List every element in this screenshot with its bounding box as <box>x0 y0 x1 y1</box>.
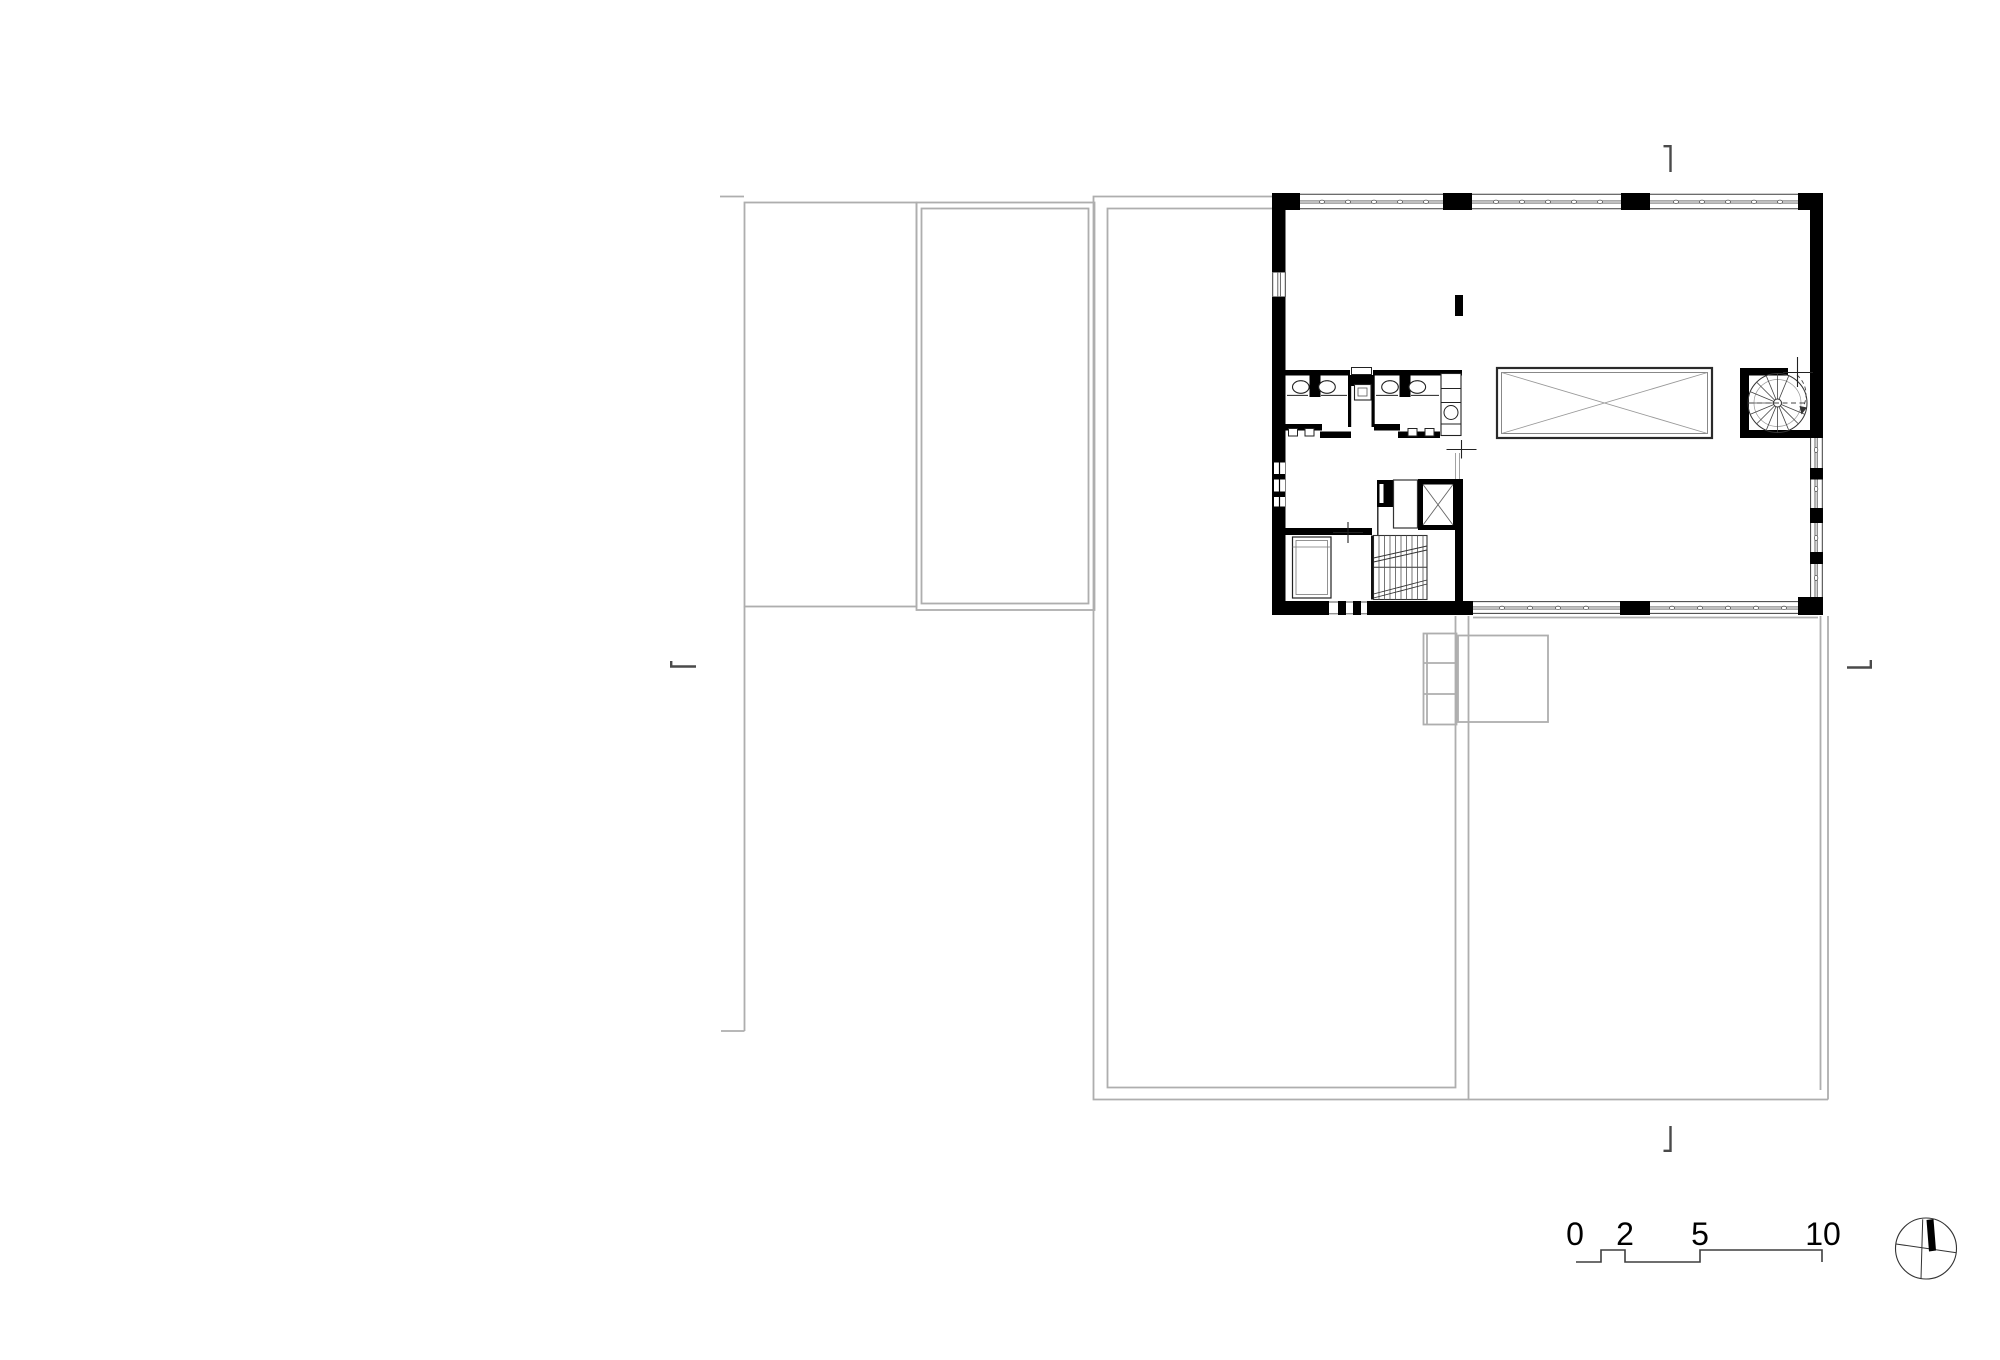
survey-cross-2 <box>1447 440 1477 459</box>
shaft <box>1394 480 1418 528</box>
floor-plan-canvas: 0 2 5 10 <box>0 0 2000 1360</box>
underlay-lower-landing <box>1458 636 1548 723</box>
shaft-block-slot <box>1380 484 1384 503</box>
scale-label-0: 0 <box>1566 1216 1584 1252</box>
section-marker-left <box>670 661 696 667</box>
drawing-sheet: 0 2 5 10 <box>0 0 2000 1360</box>
wall-left-middle <box>1272 297 1286 461</box>
core-thin-lines <box>1456 453 1460 479</box>
washbasin-3 <box>1382 381 1399 394</box>
wall-shaft-block <box>1377 480 1393 507</box>
underlay-block-b-outer <box>917 203 1095 611</box>
section-marker-top <box>1664 145 1671 172</box>
scale-label-5: 5 <box>1691 1216 1709 1252</box>
wall-top-pier-2 <box>1621 193 1650 210</box>
entry-door-post-2 <box>1353 601 1361 615</box>
scale-label-2: 2 <box>1616 1216 1634 1252</box>
spiral-stair <box>1740 368 1813 438</box>
survey-cross-1 <box>1783 357 1813 387</box>
lower-rooms <box>1293 453 1460 600</box>
section-marker-right <box>1847 660 1872 668</box>
left-wall-glass-blocks <box>1274 463 1285 507</box>
wall-right-pier-1 <box>1810 468 1823 480</box>
underlay-right-terrace <box>1469 616 1829 1100</box>
wall-top-corner-left <box>1272 193 1300 210</box>
underlay-left-edge <box>721 607 745 1032</box>
spiral-wall-bottom <box>1740 430 1813 438</box>
wall-right-pier-2 <box>1810 508 1823 523</box>
wall-bedroom <box>1284 528 1372 535</box>
entry-door-post-1 <box>1338 601 1346 615</box>
elevator <box>1418 479 1458 530</box>
wc-wall-left <box>1348 375 1351 427</box>
spiral-treads <box>1748 374 1807 433</box>
underlay-block-b-inner <box>922 209 1089 604</box>
bathroom-pier-left <box>1310 370 1321 397</box>
hall-column <box>1455 295 1463 316</box>
wall-right-pier-3 <box>1810 552 1823 564</box>
spiral-wall-top <box>1740 368 1788 376</box>
scale-bar: 0 2 5 10 <box>1566 1216 1841 1262</box>
wall-left-lower <box>1272 508 1286 615</box>
kitchenette-counter <box>1441 374 1461 436</box>
wall-top-pier-1 <box>1443 193 1472 210</box>
floor-registers <box>1289 429 1435 437</box>
wall-right-solid <box>1810 193 1823 438</box>
north-needle <box>1927 1219 1937 1252</box>
bathroom-cabinet-over-wc <box>1352 368 1372 375</box>
scale-label-10: 10 <box>1805 1216 1841 1252</box>
wc-cistern <box>1355 385 1372 401</box>
underlay-block-a <box>745 203 917 607</box>
bed <box>1293 537 1332 598</box>
section-marker-bottom <box>1664 1126 1671 1152</box>
bathroom-pier-right <box>1400 370 1411 397</box>
north-arrow-icon <box>1896 1218 1957 1279</box>
bathroom-block <box>1286 368 1463 439</box>
left-wall-window <box>1272 272 1286 297</box>
washbasin-4 <box>1409 381 1426 394</box>
main-stair <box>1372 536 1427 600</box>
entry-door-threshold <box>1329 602 1367 614</box>
wall-bottom-pier <box>1620 601 1650 615</box>
wall-bottom-left <box>1272 601 1329 615</box>
survey-cross-3 <box>1333 522 1363 543</box>
bathroom-bottom-wall-2 <box>1320 432 1351 439</box>
bathroom-bottom-wall-3 <box>1374 424 1400 431</box>
washbasin-2 <box>1319 381 1336 394</box>
wc-wall-right <box>1372 375 1375 427</box>
washbasin-1 <box>1293 381 1310 394</box>
skylight-void <box>1497 368 1712 438</box>
underlay-lower-stair-box <box>1424 634 1549 725</box>
wall-bottom-corner-right <box>1798 597 1823 615</box>
section-cut-markers <box>670 145 1872 1152</box>
